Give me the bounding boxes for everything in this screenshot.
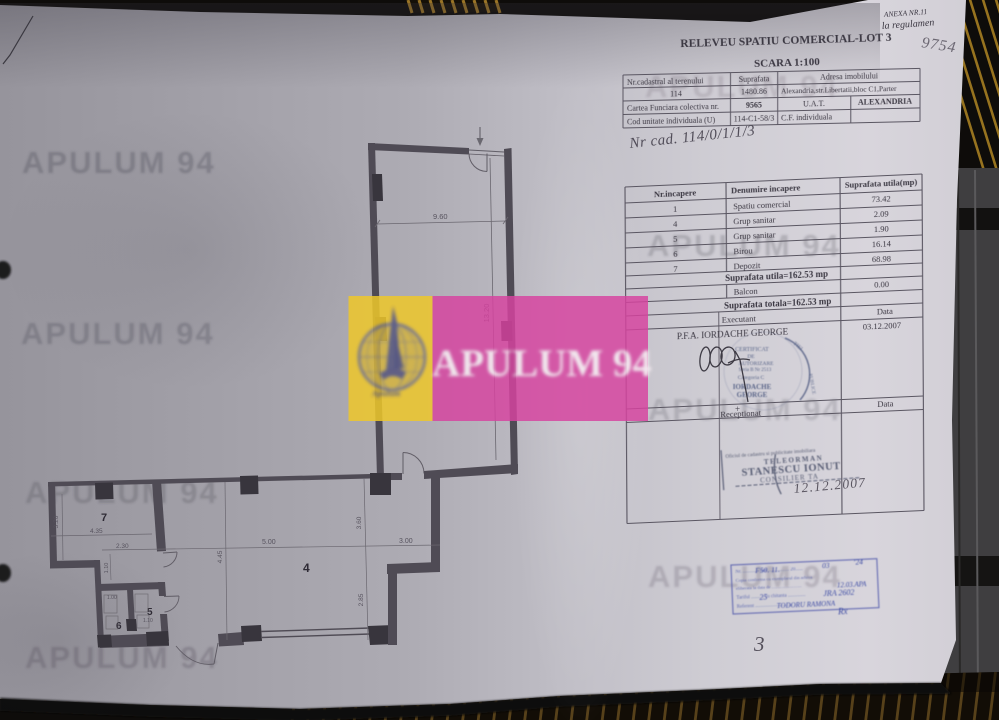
svg-text:Suprafata: Suprafata bbox=[739, 74, 770, 84]
svg-text:Birou: Birou bbox=[733, 245, 753, 256]
svg-text:APULUM 94: APULUM 94 bbox=[432, 342, 652, 385]
svg-text:2.30: 2.30 bbox=[116, 543, 129, 550]
svg-text:4.45: 4.45 bbox=[217, 550, 224, 563]
svg-text:Data: Data bbox=[877, 306, 893, 317]
svg-text:7: 7 bbox=[101, 512, 107, 524]
svg-text:5: 5 bbox=[673, 234, 677, 244]
svg-text:3.60: 3.60 bbox=[356, 516, 363, 529]
svg-text:Executant: Executant bbox=[722, 313, 757, 325]
svg-text:APULUM 94: APULUM 94 bbox=[22, 145, 216, 180]
svg-text:3.00: 3.00 bbox=[399, 538, 413, 545]
svg-text:2.09: 2.09 bbox=[874, 208, 889, 219]
svg-text:Seria B Nr 2513: Seria B Nr 2513 bbox=[739, 368, 772, 373]
svg-text:1480.86: 1480.86 bbox=[741, 87, 767, 97]
svg-text:3: 3 bbox=[753, 632, 765, 656]
svg-text:Balcon: Balcon bbox=[734, 286, 759, 297]
svg-text:Nr.incapere: Nr.incapere bbox=[654, 187, 697, 199]
svg-text:U.A.T.: U.A.T. bbox=[803, 99, 825, 108]
svg-text:Data: Data bbox=[877, 398, 893, 409]
svg-text:6: 6 bbox=[116, 621, 122, 632]
svg-text:3.20: 3.20 bbox=[53, 515, 60, 528]
svg-text:+: + bbox=[735, 404, 740, 414]
svg-text:6: 6 bbox=[673, 249, 677, 259]
svg-text:Grup sanitar: Grup sanitar bbox=[733, 214, 775, 226]
svg-text:1.10: 1.10 bbox=[143, 618, 153, 624]
svg-text:73.42: 73.42 bbox=[872, 193, 891, 204]
svg-text:1.10: 1.10 bbox=[104, 563, 110, 574]
svg-text:9.60: 9.60 bbox=[433, 212, 448, 221]
svg-text:GEORGE: GEORGE bbox=[737, 391, 768, 399]
svg-text:7: 7 bbox=[673, 264, 677, 274]
svg-text:25: 25 bbox=[759, 592, 767, 601]
svg-text:16.14: 16.14 bbox=[872, 238, 892, 249]
svg-text:Depozit: Depozit bbox=[733, 260, 761, 271]
svg-text:SCARA 1:100: SCARA 1:100 bbox=[754, 56, 821, 70]
svg-text:CERTIFICAT: CERTIFICAT bbox=[735, 347, 769, 353]
svg-text:Categoria C: Categoria C bbox=[738, 375, 765, 381]
svg-text:4.35: 4.35 bbox=[90, 528, 103, 535]
svg-text:1.00: 1.00 bbox=[107, 595, 117, 601]
svg-text:Rx: Rx bbox=[837, 606, 848, 616]
svg-text:F50. 11.: F50. 11. bbox=[754, 565, 780, 575]
svg-text:’24: ’24 bbox=[853, 557, 864, 566]
svg-text:AUTORIZARE: AUTORIZARE bbox=[738, 361, 774, 367]
svg-text:JRA 2602: JRA 2602 bbox=[823, 588, 855, 598]
svg-text:ALEXANDRIA: ALEXANDRIA bbox=[858, 97, 912, 107]
svg-text:C.F. individuala: C.F. individuala bbox=[781, 112, 833, 122]
svg-text:Grup sanitar: Grup sanitar bbox=[733, 229, 775, 241]
svg-text:1.90: 1.90 bbox=[874, 223, 889, 234]
svg-text:Nr.cadastral al terenului: Nr.cadastral al terenului bbox=[627, 76, 704, 87]
svg-text:03: 03 bbox=[822, 561, 830, 570]
svg-text:68.98: 68.98 bbox=[872, 253, 891, 264]
svg-text:Adresa imobilului: Adresa imobilului bbox=[820, 71, 879, 81]
svg-text:IORDACHE: IORDACHE bbox=[733, 383, 772, 391]
svg-text:5.00: 5.00 bbox=[262, 539, 276, 546]
svg-text:2.85: 2.85 bbox=[358, 593, 365, 606]
svg-text:1: 1 bbox=[673, 204, 677, 214]
svg-text:0.00: 0.00 bbox=[874, 279, 889, 290]
svg-text:Apulum: Apulum bbox=[371, 388, 401, 398]
svg-text:APULUM 94: APULUM 94 bbox=[21, 316, 215, 351]
svg-text:4: 4 bbox=[303, 561, 310, 575]
svg-text:03.12.2007: 03.12.2007 bbox=[863, 320, 901, 332]
svg-text:114: 114 bbox=[670, 89, 682, 98]
svg-text:9565: 9565 bbox=[746, 100, 762, 109]
